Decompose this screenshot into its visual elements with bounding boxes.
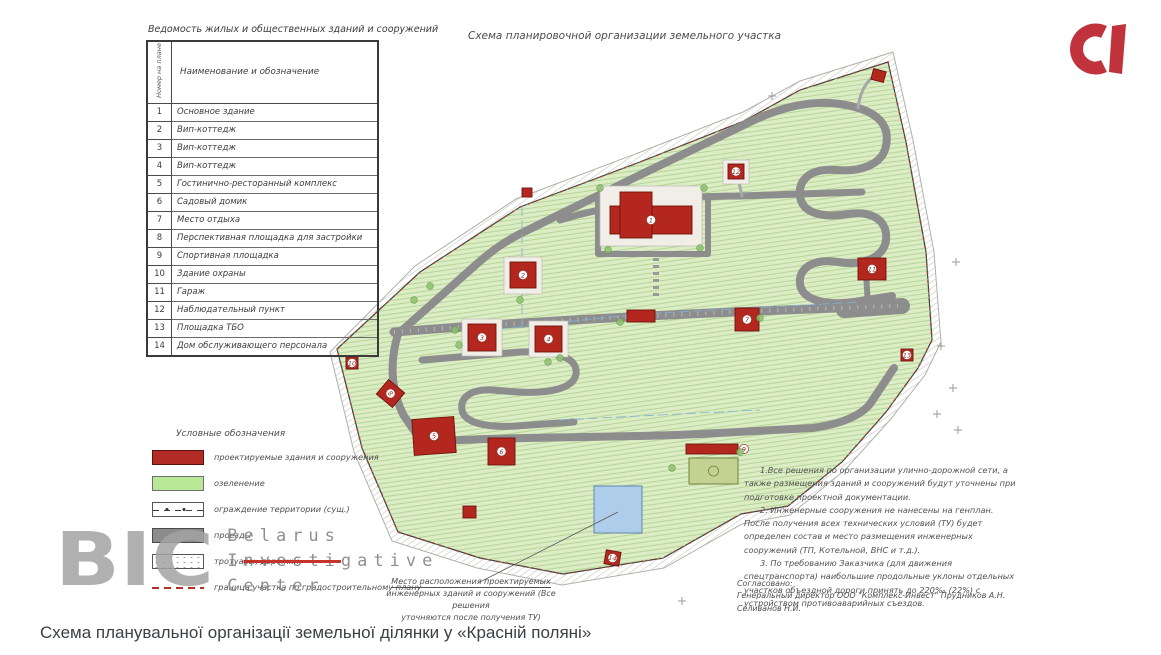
building-number: 5 xyxy=(432,432,437,440)
table-row: 1 Основное здание xyxy=(147,103,378,121)
table-row: 4 Вип-коттедж xyxy=(147,157,378,175)
tree-icon xyxy=(701,185,708,192)
row-name: Перспективная площадка для застройки xyxy=(172,229,379,247)
callout-line3: уточняются после получения ТУ) xyxy=(401,613,541,622)
row-name: Здание охраны xyxy=(172,265,379,283)
legend-label: озеленение xyxy=(214,478,265,488)
tree-icon xyxy=(545,359,552,366)
tree-icon xyxy=(757,315,764,322)
legend-label: проезды xyxy=(214,530,251,540)
survey-cross-icon xyxy=(678,597,686,605)
tree-icon xyxy=(669,465,676,472)
approval-line3: Селиванов Н.И. xyxy=(737,603,1005,615)
survey-cross-icon xyxy=(952,258,960,266)
building-1: 1 xyxy=(600,186,702,246)
building xyxy=(463,506,476,518)
row-name: Гостинично-ресторанный комплекс xyxy=(172,175,379,193)
tree-icon xyxy=(597,185,604,192)
table-row: 7 Место отдыха xyxy=(147,211,378,229)
building-table-body: 1 Основное здание 2 Вип-коттедж 3 Вип-ко… xyxy=(147,103,378,356)
row-name: Вип-коттедж xyxy=(172,121,379,139)
survey-cross-icon xyxy=(954,426,962,434)
table-row: 2 Вип-коттедж xyxy=(147,121,378,139)
tree-icon xyxy=(557,355,564,362)
column-header-name: Наименование и обозначение xyxy=(172,41,379,103)
sheet-title: Схема планировочной организации земельно… xyxy=(468,30,781,42)
row-number: 14 xyxy=(147,337,172,356)
building-number: 10 xyxy=(348,359,356,367)
table-row: 6 Садовый домик xyxy=(147,193,378,211)
legend-item: проезды xyxy=(152,527,432,543)
table-row: 13 Площадка ТБО xyxy=(147,319,378,337)
legend-label: проектируемые здания и сооружения xyxy=(214,452,379,462)
building-3: 3 xyxy=(462,319,502,356)
building-13: 13 xyxy=(901,349,913,361)
row-name: Спортивная площадка xyxy=(172,247,379,265)
tree-icon xyxy=(605,247,612,254)
row-number: 7 xyxy=(147,211,172,229)
buildings-table: Ведомость жилых и общественных зданий и … xyxy=(146,24,379,357)
legend-item: ограждение территории (сущ.) xyxy=(152,501,432,517)
row-number: 1 xyxy=(147,103,172,121)
legend-swatch-red xyxy=(152,450,204,465)
table-row: 3 Вип-коттедж xyxy=(147,139,378,157)
building xyxy=(627,310,655,322)
legend-label: тротуары, дорожки xyxy=(214,556,299,566)
row-name: Наблюдательный пункт xyxy=(172,301,379,319)
survey-cross-icon xyxy=(949,384,957,392)
row-number: 12 xyxy=(147,301,172,319)
building-number: 1 xyxy=(649,216,653,224)
row-name: Вип-коттедж xyxy=(172,157,379,175)
building-number: 6 xyxy=(499,448,503,456)
row-name: Площадка ТБО xyxy=(172,319,379,337)
row-name: Гараж xyxy=(172,283,379,301)
page: 1234567810111213149 Ведомость жилых и об… xyxy=(0,0,1161,655)
row-name: Вип-коттедж xyxy=(172,139,379,157)
row-number: 5 xyxy=(147,175,172,193)
building-number: 3 xyxy=(480,334,484,342)
building-number: 12 xyxy=(732,168,740,176)
note: 2. Инженерные сооружения не нанесены на … xyxy=(744,504,1016,557)
note: 1.Все решения по организации улично-доро… xyxy=(744,464,1016,504)
buildings-table-title: Ведомость жилых и общественных зданий и … xyxy=(148,24,379,35)
building-10: 10 xyxy=(346,357,358,369)
legend-swatch-paths xyxy=(152,554,204,569)
table-row: 12 Наблюдательный пункт xyxy=(147,301,378,319)
engineering-callout: Место расположения проектируемых инженер… xyxy=(382,576,560,624)
callout-line1: Место расположения проектируемых xyxy=(391,577,550,588)
table-row: 14 Дом обслуживающего персонала xyxy=(147,337,378,356)
tree-icon xyxy=(411,297,418,304)
row-number: 4 xyxy=(147,157,172,175)
legend-swatch-boundary xyxy=(152,580,204,595)
table-row: 10 Здание охраны xyxy=(147,265,378,283)
tree-icon xyxy=(697,245,704,252)
row-number: 10 xyxy=(147,265,172,283)
image-caption: Схема планувальної організації земельної… xyxy=(40,623,591,643)
table-row: 5 Гостинично-ресторанный комплекс xyxy=(147,175,378,193)
row-number: 2 xyxy=(147,121,172,139)
ci-logo-c xyxy=(1077,30,1104,68)
callout-line2: инженерных зданий и сооружений (Все реше… xyxy=(386,589,555,610)
tree-icon xyxy=(737,449,744,456)
building-14: 14 xyxy=(604,550,621,566)
legend-item: тротуары, дорожки xyxy=(152,553,432,569)
legend-swatch-fence xyxy=(152,502,204,517)
legend-item: озеленение xyxy=(152,475,432,491)
building-6: 6 xyxy=(488,438,515,465)
row-number: 9 xyxy=(147,247,172,265)
legend-title: Условные обозначения xyxy=(176,429,432,439)
building xyxy=(522,188,532,197)
row-name: Садовый домик xyxy=(172,193,379,211)
table-row: 8 Перспективная площадка для застройки xyxy=(147,229,378,247)
tree-icon xyxy=(427,283,434,290)
tree-icon xyxy=(456,342,463,349)
building-7: 7 xyxy=(735,308,759,331)
building-number: 4 xyxy=(546,335,550,343)
row-name: Место отдыха xyxy=(172,211,379,229)
ci-logo xyxy=(1062,22,1136,76)
row-number: 3 xyxy=(147,139,172,157)
tree-icon xyxy=(617,319,624,326)
legend-swatch-gray xyxy=(152,528,204,543)
table-row: 9 Спортивная площадка xyxy=(147,247,378,265)
building-number: 13 xyxy=(903,351,911,359)
legend-swatch-green xyxy=(152,476,204,491)
approval-line1: Согласовано: xyxy=(737,578,1005,590)
legend-item: проектируемые здания и сооружения xyxy=(152,449,432,465)
table-row: 11 Гараж xyxy=(147,283,378,301)
row-name: Основное здание xyxy=(172,103,379,121)
building-number: 14 xyxy=(608,554,618,563)
tree-icon xyxy=(517,297,524,304)
engineering-area xyxy=(594,486,642,533)
ci-logo-i xyxy=(1109,24,1126,74)
building-2: 2 xyxy=(504,257,542,294)
legend-label: ограждение территории (сущ.) xyxy=(214,504,350,514)
survey-cross-icon xyxy=(933,410,941,418)
row-number: 13 xyxy=(147,319,172,337)
row-number: 6 xyxy=(147,193,172,211)
tree-icon xyxy=(452,327,459,334)
row-number: 8 xyxy=(147,229,172,247)
row-name: Дом обслуживающего персонала xyxy=(172,337,379,356)
approval-line2: Генеральный директор ООО "Комплекс-Инвес… xyxy=(737,590,1005,602)
building-12: 12 xyxy=(723,160,749,184)
building-number: 11 xyxy=(868,265,876,273)
column-header-number: Номер на плане xyxy=(147,41,172,103)
approval-block: Согласовано: Генеральный директор ООО "К… xyxy=(737,578,1005,615)
building-number: 2 xyxy=(521,271,525,279)
row-number: 11 xyxy=(147,283,172,301)
building-4: 4 xyxy=(529,321,568,357)
building-11: 11 xyxy=(858,258,886,280)
